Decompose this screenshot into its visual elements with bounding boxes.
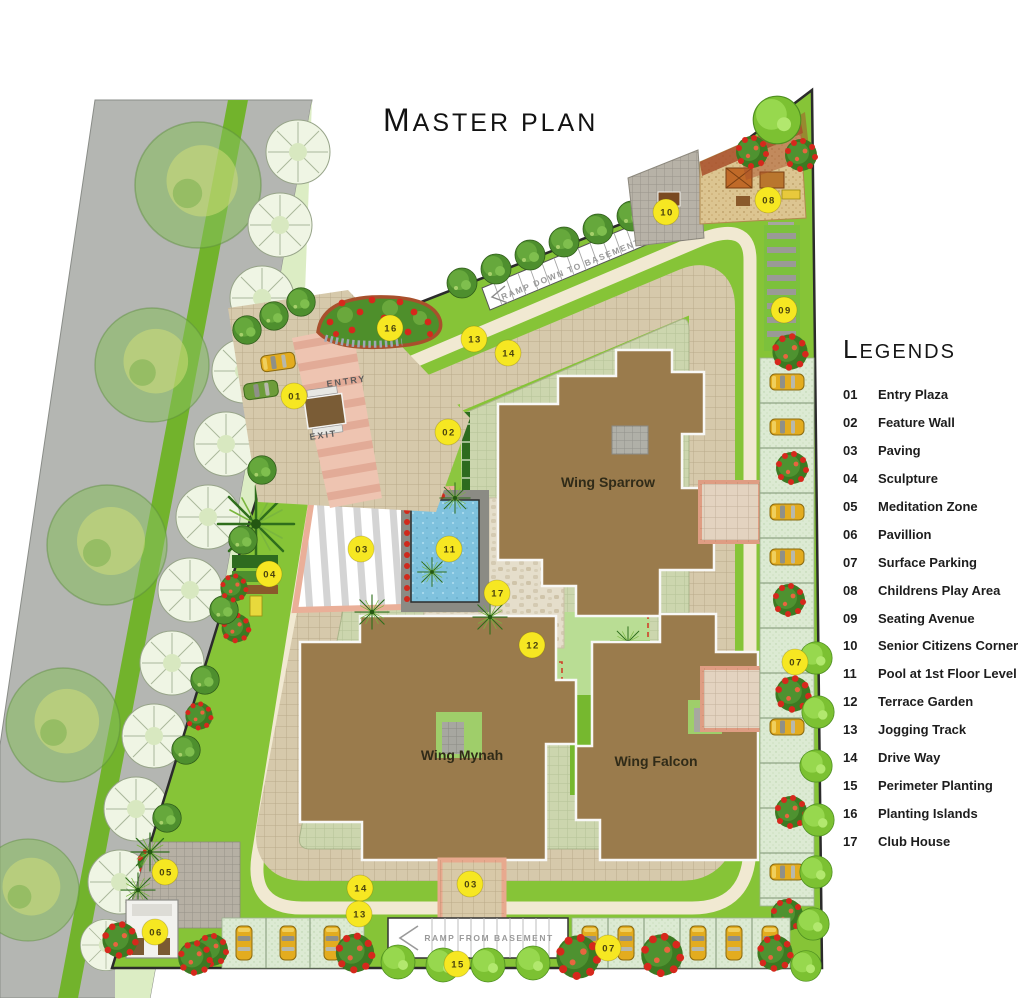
legend-item-number: 14 xyxy=(843,750,867,765)
legend-item-number: 11 xyxy=(843,666,867,681)
legend-item-label: Meditation Zone xyxy=(867,499,978,514)
wing-falcon-label: Wing Falcon xyxy=(614,753,697,769)
ramp-bottom-label: RAMP FROM BASEMENT xyxy=(424,933,553,943)
svg-text:02: 02 xyxy=(442,428,456,439)
drive-way-marker: 14 xyxy=(495,340,521,366)
legend-item-11: 11Pool at 1st Floor Level xyxy=(843,660,1021,688)
club-house-marker: 17 xyxy=(484,580,510,606)
legend-item-number: 04 xyxy=(843,471,867,486)
legend-item-06: 06Pavillion xyxy=(843,520,1021,548)
surface-parking-east xyxy=(760,333,814,932)
legend-item-number: 10 xyxy=(843,638,867,653)
legend-item-label: Planting Islands xyxy=(867,806,978,821)
legend-item-number: 17 xyxy=(843,834,867,849)
svg-text:15: 15 xyxy=(451,960,465,971)
sculpture xyxy=(250,596,262,616)
legend-heading: LEGENDS xyxy=(843,334,1021,365)
svg-text:08: 08 xyxy=(762,196,776,207)
wing-sparrow-label: Wing Sparrow xyxy=(561,474,655,490)
svg-text:06: 06 xyxy=(149,928,163,939)
wing-mynah-label: Wing Mynah xyxy=(421,747,503,763)
legend-item-13: 13Jogging Track xyxy=(843,716,1021,744)
page-title: MASTER PLAN xyxy=(383,102,598,139)
legend-item-label: Perimeter Planting xyxy=(867,778,993,793)
svg-text:01: 01 xyxy=(288,392,302,403)
legend-item-number: 12 xyxy=(843,694,867,709)
legend-item-number: 07 xyxy=(843,555,867,570)
svg-text:04: 04 xyxy=(263,570,277,581)
legend-item-09: 09Seating Avenue xyxy=(843,604,1021,632)
legend-item-label: Club House xyxy=(867,834,950,849)
legend-item-number: 16 xyxy=(843,806,867,821)
seating-avenue-marker: 09 xyxy=(771,297,797,323)
legend-item-label: Pavillion xyxy=(867,527,931,542)
sculpture-marker: 04 xyxy=(256,561,282,587)
svg-text:07: 07 xyxy=(789,658,803,669)
surface-parking-marker-2: 07 xyxy=(595,935,621,961)
drive-way-marker-2: 14 xyxy=(347,875,373,901)
legend-item-label: Drive Way xyxy=(867,750,940,765)
wing-falcon-building xyxy=(576,614,758,860)
security-cabin xyxy=(304,394,346,429)
legend-item-label: Terrace Garden xyxy=(867,694,973,709)
feature-wall-marker: 02 xyxy=(435,419,461,445)
legend-item-number: 15 xyxy=(843,778,867,793)
svg-text:12: 12 xyxy=(526,641,540,652)
legend-item-01: 01Entry Plaza xyxy=(843,381,1021,409)
svg-text:10: 10 xyxy=(660,208,674,219)
legend-item-12: 12Terrace Garden xyxy=(843,688,1021,716)
legend-items: 01Entry Plaza02Feature Wall03Paving04Scu… xyxy=(843,381,1021,855)
childrens-play-area-marker: 08 xyxy=(755,187,781,213)
senior-citizens-corner xyxy=(628,150,704,246)
legend-item-number: 08 xyxy=(843,583,867,598)
legend-item-14: 14Drive Way xyxy=(843,744,1021,772)
svg-text:11: 11 xyxy=(443,545,456,556)
legend-item-03: 03Paving xyxy=(843,437,1021,465)
svg-text:13: 13 xyxy=(468,335,482,346)
meditation-zone-marker: 05 xyxy=(152,859,178,885)
svg-text:03: 03 xyxy=(355,545,369,556)
legend-item-label: Surface Parking xyxy=(867,555,977,570)
legend-item-label: Sculpture xyxy=(867,471,938,486)
legend-item-label: Feature Wall xyxy=(867,415,955,430)
svg-text:17: 17 xyxy=(491,589,505,600)
legend-item-label: Jogging Track xyxy=(867,722,966,737)
legend-item-label: Paving xyxy=(867,443,921,458)
legend-item-08: 08Childrens Play Area xyxy=(843,576,1021,604)
entry-plaza-marker: 01 xyxy=(281,383,307,409)
legend-item-number: 06 xyxy=(843,527,867,542)
svg-text:09: 09 xyxy=(778,306,792,317)
jogging-track-marker-2: 13 xyxy=(346,901,372,927)
legend-item-label: Senior Citizens Corner xyxy=(867,638,1018,653)
terrace-garden-marker: 12 xyxy=(519,632,545,658)
legend-item-10: 10Senior Citizens Corner xyxy=(843,632,1021,660)
seating-avenue xyxy=(764,225,800,351)
legend-item-label: Entry Plaza xyxy=(867,387,948,402)
master-plan-page: ENTRY EXIT RAMP DOWN TO BASEMENT xyxy=(0,0,1024,998)
legend-item-number: 09 xyxy=(843,611,867,626)
pavillion-marker: 06 xyxy=(142,919,168,945)
svg-text:07: 07 xyxy=(602,944,616,955)
legend-item-02: 02Feature Wall xyxy=(843,409,1021,437)
legend-panel: LEGENDS 01Entry Plaza02Feature Wall03Pav… xyxy=(843,334,1021,855)
legend-item-number: 13 xyxy=(843,722,867,737)
legend-item-number: 05 xyxy=(843,499,867,514)
perimeter-planting-marker: 15 xyxy=(444,951,470,977)
svg-text:03: 03 xyxy=(464,880,478,891)
legend-item-label: Childrens Play Area xyxy=(867,583,1000,598)
paving-marker-2: 03 xyxy=(457,871,483,897)
legend-item-number: 01 xyxy=(843,387,867,402)
surface-parking-marker: 07 xyxy=(782,649,808,675)
legend-item-15: 15Perimeter Planting xyxy=(843,771,1021,799)
legend-item-label: Pool at 1st Floor Level xyxy=(867,666,1017,681)
legend-item-number: 03 xyxy=(843,443,867,458)
legend-item-label: Seating Avenue xyxy=(867,611,975,626)
svg-text:16: 16 xyxy=(384,324,398,335)
paving-marker: 03 xyxy=(348,536,374,562)
svg-text:14: 14 xyxy=(502,349,516,360)
planting-islands-marker: 16 xyxy=(377,315,403,341)
svg-text:14: 14 xyxy=(354,884,368,895)
legend-item-17: 17Club House xyxy=(843,827,1021,855)
legend-item-16: 16Planting Islands xyxy=(843,799,1021,827)
svg-text:13: 13 xyxy=(353,910,367,921)
svg-text:05: 05 xyxy=(159,868,173,879)
jogging-track-marker: 13 xyxy=(461,326,487,352)
legend-item-04: 04Sculpture xyxy=(843,465,1021,493)
senior-citizens-corner-marker: 10 xyxy=(653,199,679,225)
legend-item-number: 02 xyxy=(843,415,867,430)
legend-item-05: 05Meditation Zone xyxy=(843,493,1021,521)
legend-item-07: 07Surface Parking xyxy=(843,548,1021,576)
pool-marker: 11 xyxy=(436,536,462,562)
